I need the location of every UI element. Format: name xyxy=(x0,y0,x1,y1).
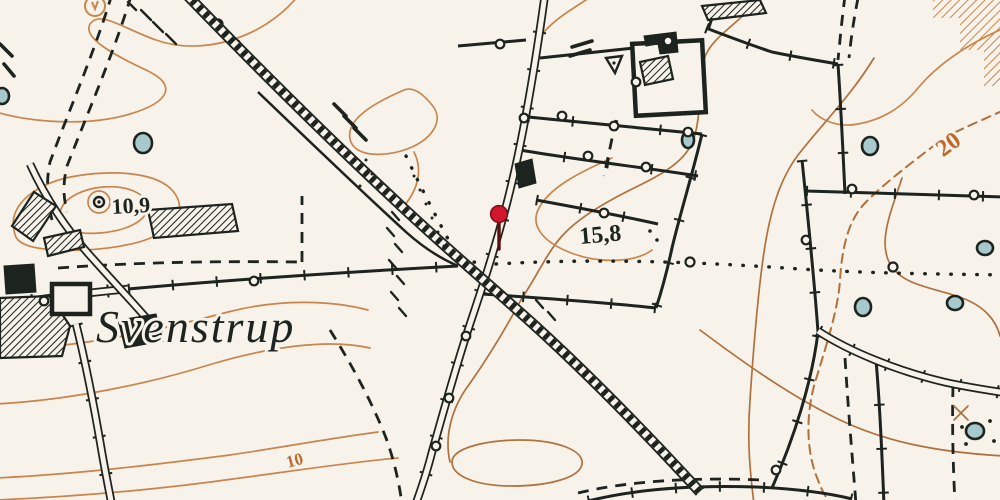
spot-height-dot xyxy=(655,238,659,242)
marsh-dot xyxy=(992,439,996,443)
gate-circle xyxy=(40,297,49,306)
gate-circle xyxy=(772,466,781,475)
boundary-stone-circle xyxy=(686,258,695,267)
gate-circle xyxy=(632,78,641,87)
pond xyxy=(855,298,871,316)
gate-circle xyxy=(520,114,529,123)
pond xyxy=(0,88,9,104)
pond xyxy=(977,241,993,255)
gate-circle xyxy=(432,442,441,451)
pond xyxy=(966,423,984,439)
spot-height-dot xyxy=(648,229,652,233)
building-hatched xyxy=(640,56,673,85)
pin-head[interactable] xyxy=(491,206,508,223)
map-viewport[interactable]: Svenstrup 10,9 15,8 20 10 xyxy=(0,0,1000,500)
marsh-dot xyxy=(988,419,992,423)
gate-circle xyxy=(664,37,673,46)
building-solid xyxy=(515,159,536,188)
place-label: Svenstrup xyxy=(96,301,295,352)
gate-circle xyxy=(496,40,505,49)
marsh-dot xyxy=(960,425,964,429)
gate-circle xyxy=(462,332,471,341)
gate-circle xyxy=(250,277,259,286)
gate-circle xyxy=(642,163,651,172)
gate-circle xyxy=(445,394,454,403)
pond xyxy=(134,133,152,153)
farmyard-enclosure xyxy=(52,284,90,314)
gate-circle xyxy=(802,236,811,245)
boundary-stone-circle xyxy=(889,263,898,272)
gate-circle xyxy=(558,112,567,121)
marsh-dot xyxy=(964,442,968,446)
map-canvas[interactable]: Svenstrup 10,9 15,8 20 10 xyxy=(0,0,1000,500)
spot-height-label-west: 10,9 xyxy=(111,192,151,219)
gate-circle xyxy=(584,152,593,161)
spot-height-label-center: 15,8 xyxy=(578,220,622,250)
gate-circle xyxy=(684,128,693,137)
building-hatched xyxy=(148,204,238,238)
pond xyxy=(862,137,878,155)
building-solid xyxy=(4,264,36,294)
gate-circle xyxy=(848,185,857,194)
gate-circle xyxy=(610,122,619,131)
pond xyxy=(947,296,963,310)
spot-height-dot xyxy=(97,200,100,203)
survey-dot xyxy=(612,61,615,64)
gate-circle xyxy=(600,209,609,218)
gate-circle xyxy=(970,191,979,200)
